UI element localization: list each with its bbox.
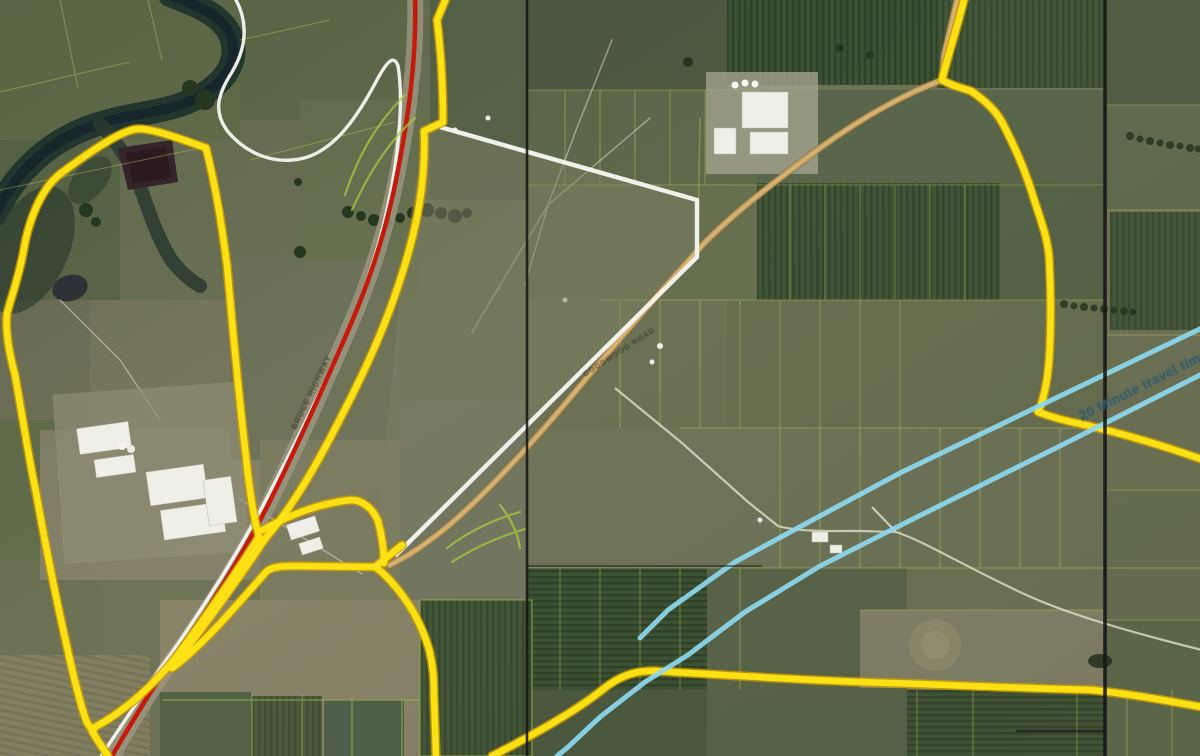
map-canvas: BRUCE HIGHWAY GOODWOOD ROAD 20 Minute tr…	[0, 0, 1200, 756]
aerial-map[interactable]: BRUCE HIGHWAY GOODWOOD ROAD 20 Minute tr…	[0, 0, 1200, 756]
sugar-mill-complex	[53, 382, 249, 564]
